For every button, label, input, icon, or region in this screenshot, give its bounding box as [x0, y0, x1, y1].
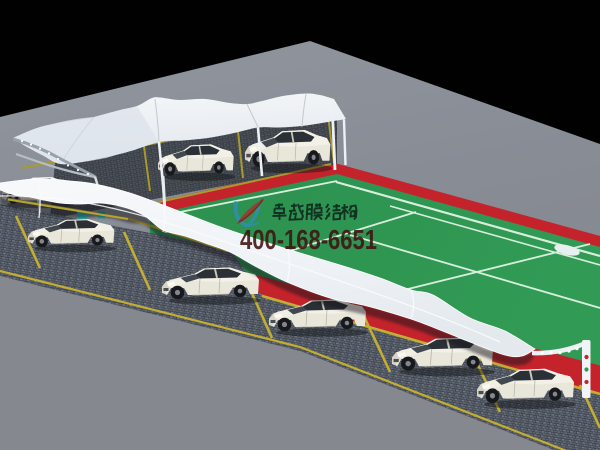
svg-text:400-168-6651: 400-168-6651	[240, 224, 377, 255]
